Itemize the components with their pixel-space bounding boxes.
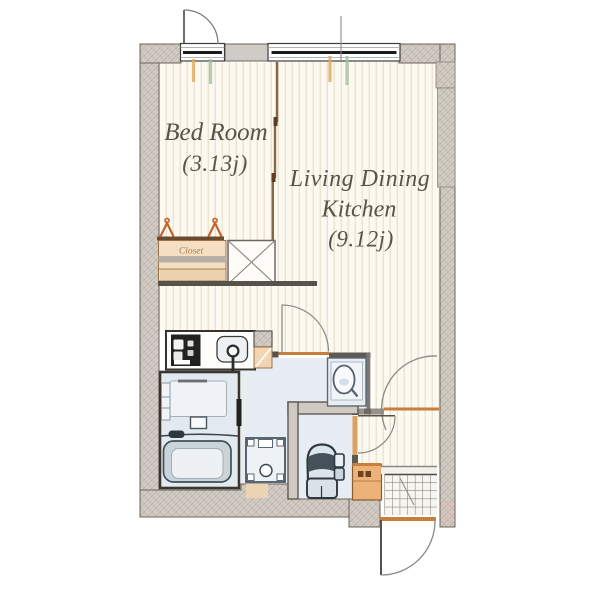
svg-text:Kitchen: Kitchen — [321, 197, 397, 223]
svg-text:(9.12j): (9.12j) — [328, 227, 393, 252]
svg-text:(3.13j): (3.13j) — [182, 151, 247, 176]
svg-text:Living Dining: Living Dining — [289, 166, 431, 192]
svg-text:Closet: Closet — [179, 247, 204, 257]
svg-text:Bed Room: Bed Room — [164, 119, 267, 146]
